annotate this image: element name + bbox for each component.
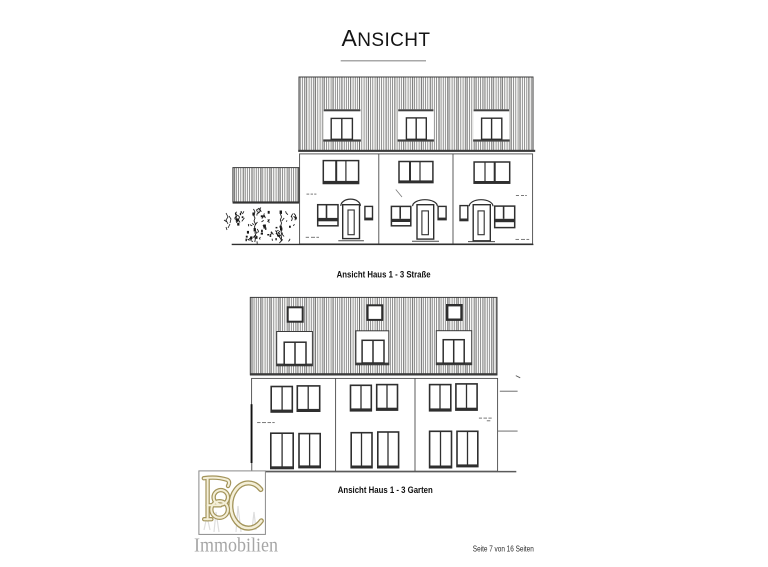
svg-text:Seite 7 von 16 Seiten: Seite 7 von 16 Seiten [473, 544, 534, 553]
svg-text:Ansicht Haus 1 - 3 Straße: Ansicht Haus 1 - 3 Straße [337, 270, 431, 281]
svg-text:Ansicht Haus 1 - 3 Garten: Ansicht Haus 1 - 3 Garten [338, 485, 433, 496]
svg-text:ANSICHT: ANSICHT [342, 25, 431, 51]
svg-text:Immobilien: Immobilien [194, 535, 278, 557]
